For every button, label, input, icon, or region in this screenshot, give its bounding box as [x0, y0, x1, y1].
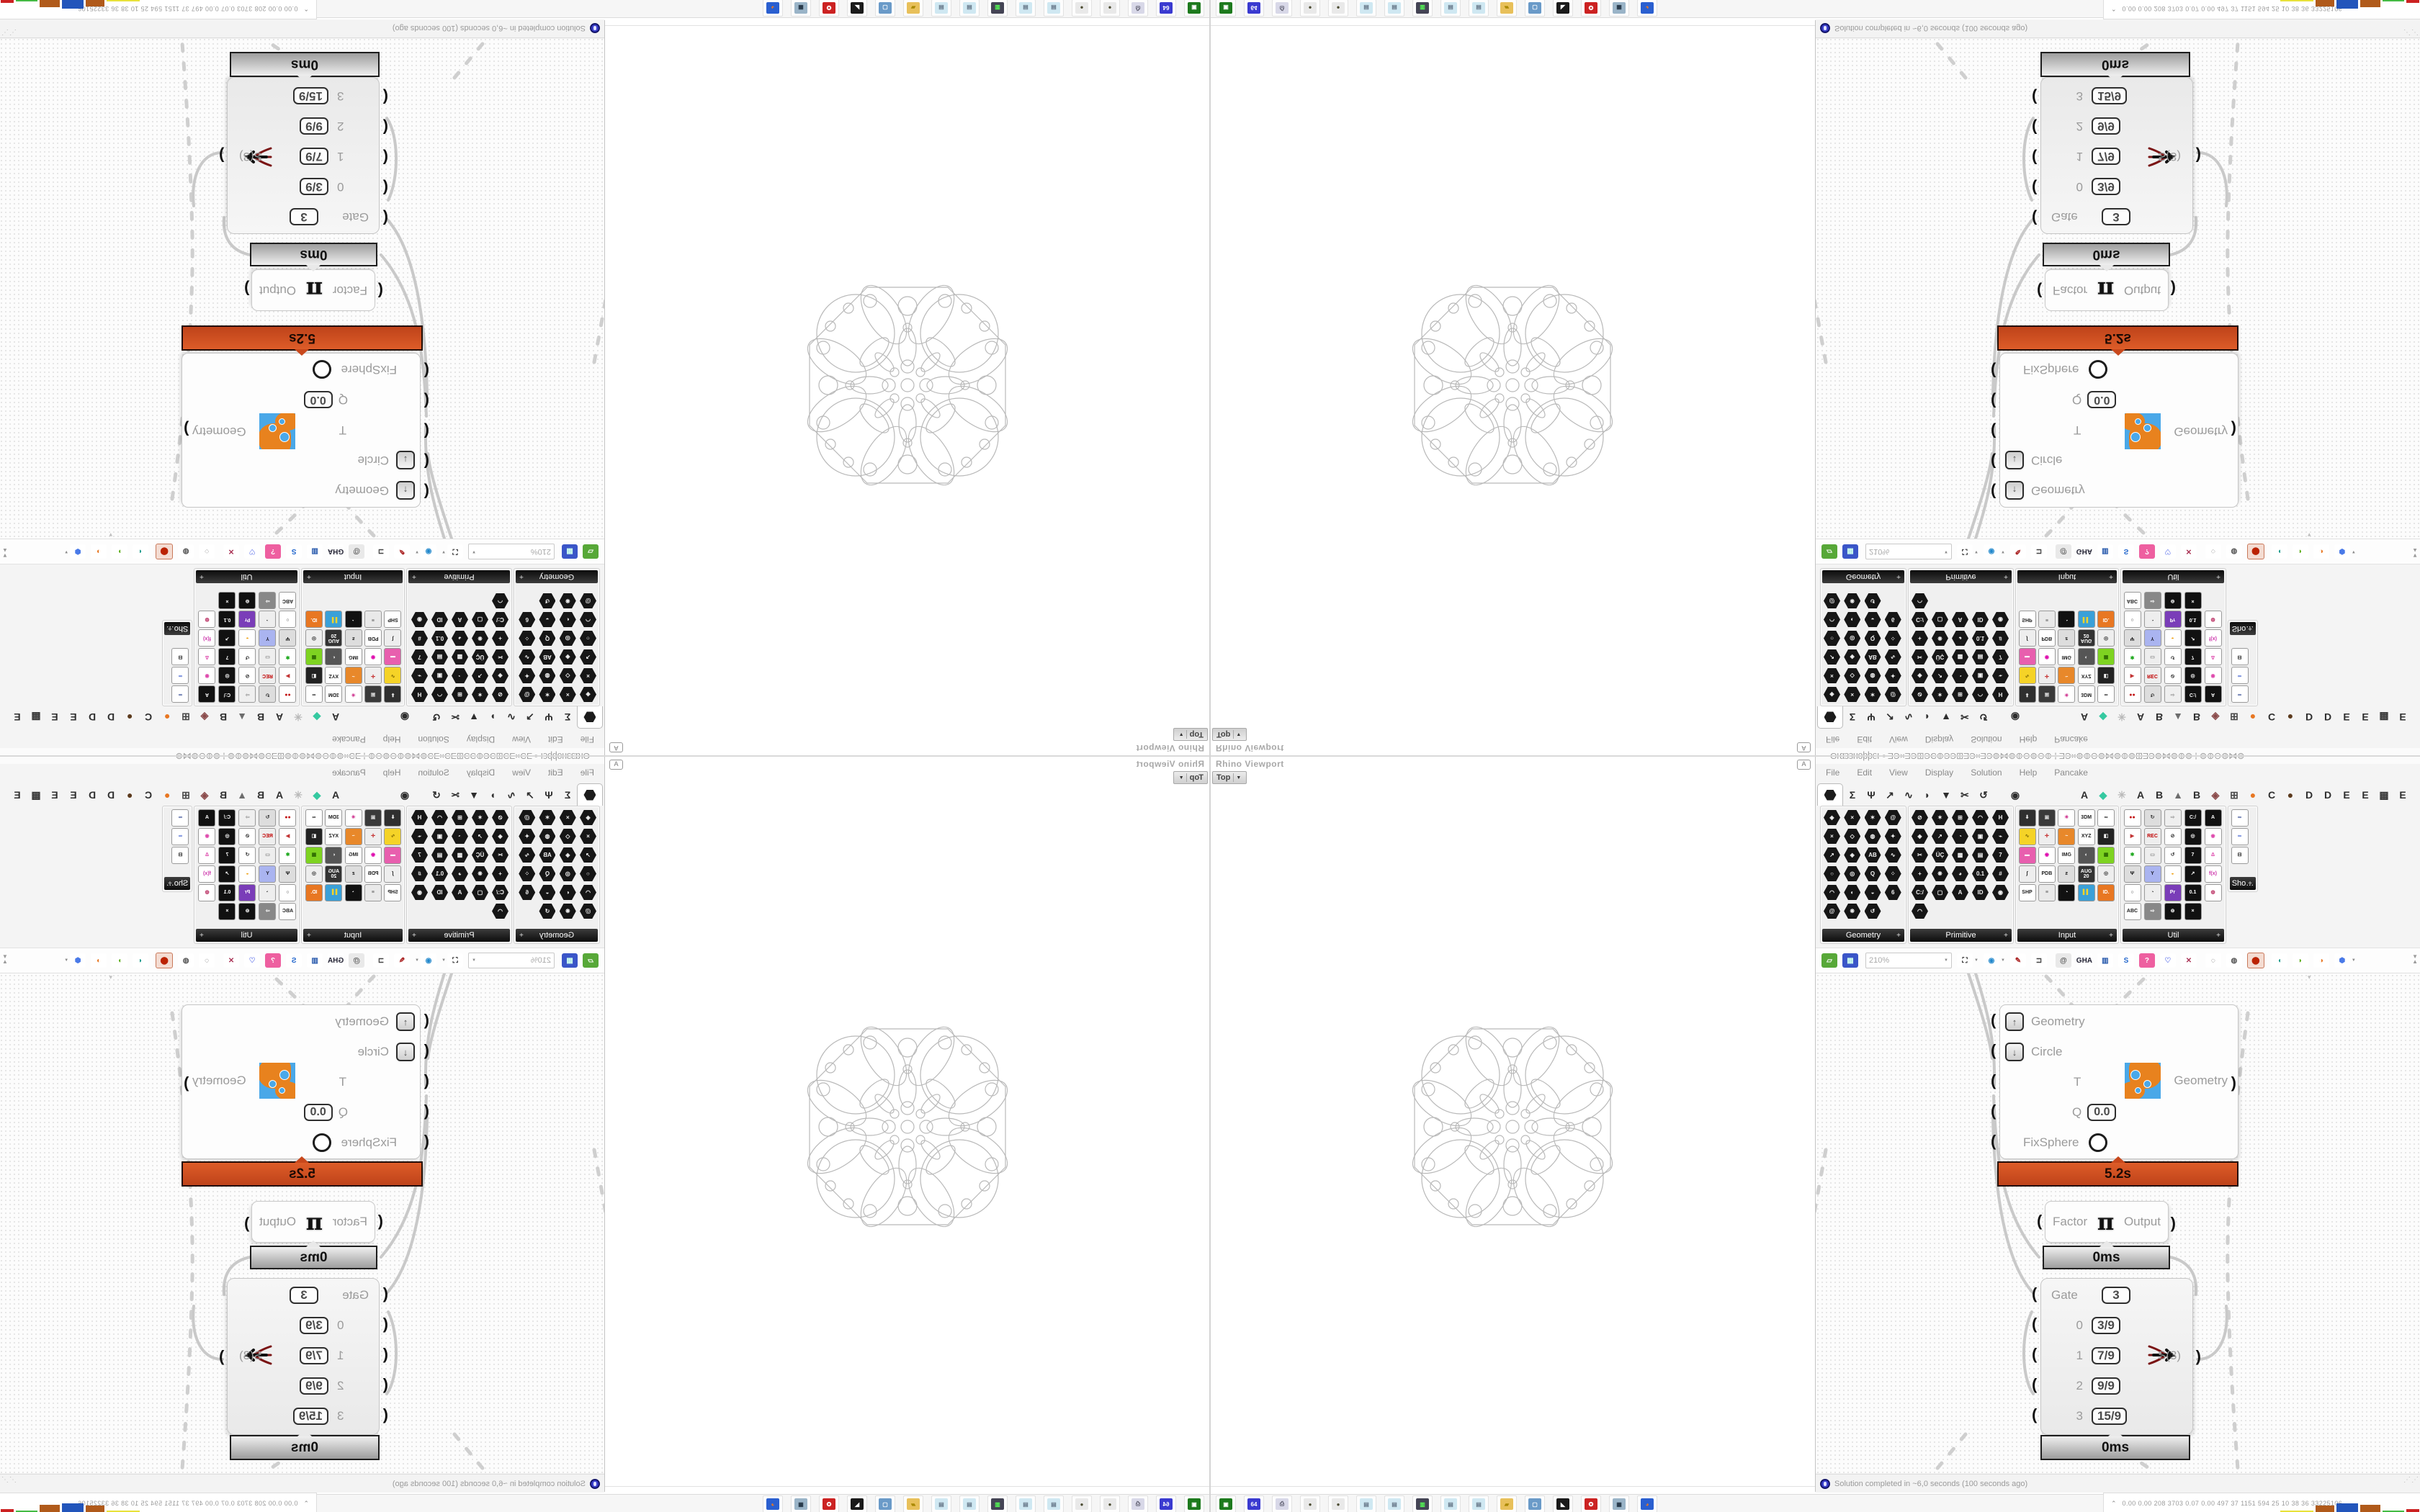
q-value-box[interactable]: 0.0	[304, 1104, 333, 1121]
palette-icon[interactable]: ✛	[364, 667, 382, 685]
palette-icon[interactable]: ✳	[344, 809, 362, 827]
palette-icon[interactable]: ◒	[1864, 611, 1882, 629]
taskbar-calculator-icon[interactable]: ▦	[791, 1495, 811, 1512]
toolbar-collapse-icon[interactable]: ▼▲	[2, 548, 8, 558]
mesh-tab[interactable]: ▼	[465, 784, 483, 806]
palette-group-label[interactable]: Sho…+	[2230, 877, 2256, 890]
palette-icon[interactable]: ▬	[384, 648, 402, 666]
input-grip[interactable]: (	[383, 181, 388, 195]
chevron-down-icon[interactable]: ▼	[415, 549, 419, 554]
palette-icon[interactable]: ⊟	[171, 648, 189, 666]
taskbar-terminal-monitor-icon[interactable]: ▥	[1412, 0, 1433, 17]
palette-icon[interactable]: ↺	[238, 846, 256, 864]
palette-icon[interactable]: ◠	[579, 883, 597, 901]
palette-icon[interactable]: 6	[518, 611, 536, 629]
palette-icon[interactable]: ○	[279, 611, 297, 629]
tab-B1[interactable]: B	[2150, 784, 2169, 806]
tab-D2[interactable]: D	[83, 784, 102, 806]
input-grip[interactable]: (	[383, 150, 388, 165]
palette-icon[interactable]: ◐	[2077, 846, 2095, 864]
palette-icon[interactable]: ◔	[2143, 611, 2161, 629]
sketch-brush-button[interactable]: ✎	[2010, 544, 2026, 559]
palette-expand-icon[interactable]: +	[2216, 932, 2220, 940]
palette-icon[interactable]: ◕	[1951, 629, 1969, 647]
menu-item-solution[interactable]: Solution	[1971, 734, 2002, 744]
palette-icon[interactable]: 7	[411, 846, 429, 864]
palette-icon[interactable]: A	[198, 685, 216, 703]
palette-icon[interactable]: ◈	[1843, 846, 1861, 864]
input-grip[interactable]: (	[383, 90, 388, 104]
palette-icon[interactable]: ×	[218, 592, 236, 610]
palette-icon[interactable]: ✦	[518, 827, 536, 845]
input-grip[interactable]: (	[1991, 394, 1996, 408]
up-arrow-button[interactable]: ↑	[396, 1012, 415, 1031]
palette-expand-icon[interactable]: +	[2248, 880, 2252, 888]
palette-icon[interactable]: 7	[2184, 648, 2202, 666]
palette-icon[interactable]: ◠	[1823, 883, 1841, 901]
fixsphere-toggle[interactable]	[2089, 360, 2107, 379]
fixsphere-toggle[interactable]	[313, 360, 331, 379]
output-grip[interactable]: )	[2231, 1074, 2236, 1092]
taskbar-cat-icon[interactable]: ◣	[1553, 1495, 1573, 1512]
gate-value-box[interactable]: 3/9	[300, 178, 328, 195]
palette-icon[interactable]: ▦	[2097, 648, 2115, 666]
chevron-down-icon[interactable]: ▼	[1944, 549, 1948, 554]
output-grip[interactable]: )	[2171, 279, 2176, 298]
palette-icon[interactable]: ◍	[539, 667, 557, 685]
palette-icon[interactable]: ABC	[2123, 902, 2141, 920]
palette-icon[interactable]: ⊘	[491, 809, 509, 827]
palette-icon[interactable]: SHP	[384, 611, 402, 629]
palette-icon[interactable]: ◐	[1843, 883, 1861, 901]
green-pipe-button[interactable]: ◗	[112, 544, 127, 559]
palette-icon[interactable]: Pr	[2164, 883, 2182, 901]
palette-icon[interactable]: +	[1911, 629, 1929, 647]
palette-icon[interactable]: ◈	[1843, 648, 1861, 666]
input-grip[interactable]: (	[2032, 1347, 2037, 1362]
palette-icon[interactable]: ◉	[411, 883, 429, 901]
display-tab[interactable]: ◉	[395, 784, 414, 806]
palette-icon[interactable]: ◔	[451, 667, 469, 685]
menu-item-edit[interactable]: Edit	[548, 734, 563, 744]
green-pipe-button[interactable]: ◗	[112, 953, 127, 968]
palette-icon[interactable]: ◍	[198, 883, 216, 901]
palette-icon[interactable]: ❋	[1931, 629, 1949, 647]
palette-icon[interactable]: ○	[2123, 883, 2141, 901]
tab-A2[interactable]: A	[2131, 784, 2150, 806]
palette-icon[interactable]: ID	[1971, 611, 1989, 629]
palette-icon[interactable]: ⁘	[518, 865, 536, 883]
palette-icon[interactable]: ×	[1823, 667, 1841, 685]
input-grip[interactable]: (	[383, 1317, 388, 1331]
taskbar-notepad-icon[interactable]: ▤	[1044, 1495, 1064, 1512]
taskbar-folder-icon[interactable]: ▰	[903, 0, 923, 17]
palette-icon[interactable]: 0.1	[431, 865, 449, 883]
orange-dot-tab[interactable]: ●	[158, 706, 176, 728]
input-grip[interactable]: (	[383, 1347, 388, 1362]
palette-icon[interactable]: ◠	[1823, 611, 1841, 629]
floating-a-button[interactable]: A	[609, 742, 623, 752]
palette-icon[interactable]: ✶	[1931, 685, 1949, 703]
palette-icon[interactable]: ◒	[2164, 865, 2182, 883]
taskbar-printer-icon[interactable]: ⎙	[1128, 1495, 1148, 1512]
palette-icon[interactable]: ◒	[539, 611, 557, 629]
menu-item-pancake[interactable]: Pancake	[332, 734, 366, 744]
tab-D1[interactable]: D	[2300, 784, 2318, 806]
palette-icon[interactable]: ✶	[1864, 809, 1882, 827]
palette-expand-icon[interactable]: +	[307, 932, 311, 940]
palette-icon[interactable]: IMG	[2058, 846, 2076, 864]
taskbar-browser-globe-icon[interactable]: ◕	[763, 0, 783, 17]
palette-icon[interactable]: ∿	[2018, 667, 2036, 685]
palette-icon[interactable]: ✂	[1911, 846, 1929, 864]
taskbar-browser-globe-icon[interactable]: ◕	[1637, 0, 1657, 17]
flower-tab[interactable]: ✳	[289, 706, 308, 728]
palette-group-label[interactable]: Input+	[2017, 570, 2117, 583]
palette-icon[interactable]: f(x)	[2204, 629, 2222, 647]
menu-item-view[interactable]: View	[1889, 734, 1908, 744]
palette-icon[interactable]: ●●	[2123, 809, 2141, 827]
output-grip[interactable]: )	[219, 146, 224, 165]
palette-icon[interactable]: ◔	[259, 883, 277, 901]
palette-icon[interactable]: ◔	[2058, 883, 2076, 901]
palette-icon[interactable]: ≡	[364, 611, 382, 629]
tab-A1[interactable]: A	[2075, 706, 2094, 728]
transform-tab[interactable]: ↺	[1974, 784, 1993, 806]
chevron-down-icon[interactable]: ▼	[1974, 958, 1978, 963]
tab-A2[interactable]: A	[270, 784, 289, 806]
maths-tab[interactable]: Σ	[1843, 784, 1862, 806]
palette-icon[interactable]: ◠	[431, 685, 449, 703]
palette-icon[interactable]: ↻	[259, 685, 277, 703]
palette-icon[interactable]: ◐	[325, 846, 343, 864]
search-s-button[interactable]: S	[286, 953, 302, 968]
preview-wire-button[interactable]: ◍	[178, 953, 194, 968]
palette-icon[interactable]: ✂	[491, 846, 509, 864]
gate-value-box[interactable]: 15/9	[2092, 1408, 2127, 1425]
palette-icon[interactable]: ◠	[1911, 592, 1929, 610]
palette-icon[interactable]: ◈	[1911, 667, 1929, 685]
palette-icon[interactable]: ⇨	[2143, 902, 2161, 920]
palette-icon[interactable]: Q	[539, 629, 557, 647]
blue-hex-button[interactable]: ⬢▼	[2334, 544, 2356, 559]
palette-icon[interactable]: Pr	[2164, 611, 2182, 629]
palette-icon[interactable]: Δ	[198, 846, 216, 864]
transform-tab[interactable]: ↺	[1974, 706, 1993, 728]
palette-icon[interactable]: ◔	[2143, 883, 2161, 901]
taskbar-notepad-icon[interactable]: ▤	[1384, 0, 1404, 17]
maths-tab[interactable]: Σ	[558, 784, 577, 806]
palette-icon[interactable]: ↗	[1931, 667, 1949, 685]
output-grip[interactable]: )	[2231, 420, 2236, 438]
palette-icon[interactable]: ◎	[2097, 865, 2115, 883]
palette-icon[interactable]: ▶	[279, 827, 297, 845]
palette-icon[interactable]: ✛	[364, 827, 382, 845]
menu-item-display[interactable]: Display	[1925, 734, 1953, 744]
palette-icon[interactable]: ∞	[171, 809, 189, 827]
preview-shaded-button[interactable]: ⬤	[156, 953, 173, 968]
viewport-top-button[interactable]: Top ▼	[1173, 771, 1208, 784]
palette-icon[interactable]: ▶	[2123, 667, 2141, 685]
palette-icon[interactable]: ◈	[491, 827, 509, 845]
save-file-button[interactable]: ▦	[1842, 544, 1858, 559]
gate-value-box[interactable]: 9/9	[2092, 1377, 2120, 1395]
menu-item-view[interactable]: View	[512, 734, 531, 744]
zoom-extents-button[interactable]: ⛶▼	[442, 953, 463, 968]
palette-icon[interactable]: ÜÇ	[471, 648, 489, 666]
at-button[interactable]: @	[349, 544, 364, 559]
palette-icon[interactable]: XYZ	[325, 827, 343, 845]
palette-icon[interactable]: ⊚	[238, 902, 256, 920]
blue-hex-button[interactable]: ⬢▼	[64, 953, 86, 968]
chevron-up-icon[interactable]: ⌃	[2111, 1502, 2117, 1506]
surface-tab[interactable]: ◗	[1918, 706, 1937, 728]
chevron-down-icon[interactable]: ▼	[1974, 549, 1978, 554]
taskbar-floppy64-icon[interactable]: 64	[1156, 0, 1176, 17]
teal-pipe-button[interactable]: ◖	[2272, 544, 2287, 559]
palette-icon[interactable]: ◈	[1823, 809, 1841, 827]
menu-item-pancake[interactable]: Pancake	[2054, 768, 2088, 778]
fixsphere-component[interactable]: Geometry ) (↑Geometry(↓Circle(T(Q0.0(Fix…	[181, 1004, 421, 1159]
sketch-brush-button[interactable]: ✎	[2010, 953, 2026, 968]
menu-item-solution[interactable]: Solution	[1971, 768, 2002, 778]
palette-icon[interactable]: ◎	[218, 827, 236, 845]
palette-icon[interactable]: ⇨	[238, 809, 256, 827]
palette-icon[interactable]: ◈	[1911, 827, 1929, 845]
taskbar-display-settings-icon[interactable]: ▢	[1525, 0, 1545, 17]
palette-icon[interactable]: ▭	[2143, 648, 2161, 666]
tab-E2[interactable]: E	[45, 784, 64, 806]
vector-tab[interactable]: ↗	[521, 706, 539, 728]
palette-expand-icon[interactable]: +	[2004, 932, 2008, 940]
palette-icon[interactable]: AB	[1864, 648, 1882, 666]
mountain-tab[interactable]: ▲	[2169, 784, 2187, 806]
zoom-extents-button[interactable]: ⛶▼	[1957, 953, 1978, 968]
tab-C[interactable]: C	[2262, 784, 2281, 806]
flower-tab[interactable]: ✳	[2112, 706, 2131, 728]
palette-icon[interactable]: ◎	[305, 865, 323, 883]
taskbar-notepad-icon[interactable]: ▤	[1469, 1495, 1489, 1512]
palette-icon[interactable]: ◎	[559, 629, 577, 647]
palette-icon[interactable]: 0.1	[2184, 883, 2202, 901]
palette-icon[interactable]: #	[1991, 865, 2009, 883]
taskbar-notepad-icon[interactable]: ▤	[959, 1495, 980, 1512]
surface-tab[interactable]: ◗	[1918, 784, 1937, 806]
palette-icon[interactable]: ○	[2123, 611, 2141, 629]
menu-item-edit[interactable]: Edit	[1857, 768, 1872, 778]
palette-icon[interactable]: ⊟	[2231, 846, 2249, 864]
resize-grip[interactable]: ⋰⋰	[1, 28, 17, 36]
palette-icon[interactable]: ▣	[1971, 827, 1989, 845]
zoom-level-combobox[interactable]: 210%▼	[468, 544, 555, 559]
taskbar-printer-icon[interactable]: ⎙	[1272, 0, 1292, 17]
gate-value-box[interactable]: 9/9	[300, 1377, 328, 1395]
input-grip[interactable]: (	[424, 394, 429, 408]
menu-item-file[interactable]: File	[581, 768, 594, 778]
palette-icon[interactable]: Ψ	[2123, 629, 2141, 647]
input-grip[interactable]: (	[424, 454, 429, 469]
palette-icon[interactable]: ⌁	[1991, 827, 2009, 845]
palette-icon[interactable]: ▤	[1971, 846, 1989, 864]
palette-icon[interactable]: Δ	[2204, 648, 2222, 666]
palette-icon[interactable]: ▣	[364, 685, 382, 703]
resize-grip[interactable]: ⋰⋰	[2403, 1476, 2419, 1484]
input-grip[interactable]: (	[1991, 424, 1996, 438]
palette-icon[interactable]: 0.1	[218, 883, 236, 901]
input-grip[interactable]: (	[1991, 454, 1996, 469]
palette-icon[interactable]: Pr	[238, 883, 256, 901]
input-grip[interactable]: (	[2032, 1408, 2037, 1422]
menu-item-edit[interactable]: Edit	[548, 768, 563, 778]
palette-icon[interactable]: ●●	[2123, 685, 2141, 703]
palette-icon[interactable]: ◔	[1951, 827, 1969, 845]
taskbar-terminal-monitor-icon[interactable]: ▥	[987, 1495, 1008, 1512]
system-stats-widget[interactable]: ⌃ 0.00 0.00 208 3703 0.07 0.00 497 37 11…	[0, 0, 317, 19]
mesh-tab[interactable]: ▼	[465, 706, 483, 728]
taskbar-red-badge-icon[interactable]: ✪	[1581, 1495, 1601, 1512]
exit-door-button[interactable]: ⊐	[373, 544, 389, 559]
preview-eye-button[interactable]: ◉▼	[1984, 953, 2005, 968]
palette-icon[interactable]: ∞	[171, 827, 189, 845]
tab-E1[interactable]: E	[64, 706, 83, 728]
palette-icon[interactable]: ▩	[451, 648, 469, 666]
palette-icon[interactable]: ⇨	[2143, 592, 2161, 610]
chevron-down-icon[interactable]: ▼	[64, 549, 68, 554]
blue-hex-button[interactable]: ⬢▼	[64, 544, 86, 559]
input-grip[interactable]: (	[2032, 120, 2037, 135]
palette-group-label[interactable]: Primitive+	[1910, 929, 2012, 942]
gate-value-box[interactable]: 15/9	[2092, 87, 2127, 104]
palette-icon[interactable]: ▶	[2123, 827, 2141, 845]
palette-icon[interactable]: ⇨	[259, 902, 277, 920]
orange-dot-tab[interactable]: ●	[158, 784, 176, 806]
taskbar-red-badge-icon[interactable]: ✪	[819, 0, 839, 17]
output-grip[interactable]: )	[244, 1214, 249, 1233]
taskbar-green-monitor-icon[interactable]: ▣	[1216, 0, 1236, 17]
palette-icon[interactable]: 7	[1991, 846, 2009, 864]
intersect-tab[interactable]: ✂	[1955, 706, 1974, 728]
palette-group-label[interactable]: Sho…+	[164, 877, 190, 890]
resize-grip[interactable]: ⋰⋰	[2403, 28, 2419, 36]
preview-none-button[interactable]: ◌	[199, 953, 215, 968]
preview-eye-button[interactable]: ◉▼	[415, 953, 436, 968]
palette-icon[interactable]: ⇨	[2164, 809, 2182, 827]
palette-icon[interactable]: ×	[2184, 902, 2202, 920]
gate-value-box[interactable]: 15/9	[293, 1408, 328, 1425]
intersect-tab[interactable]: ✂	[446, 706, 465, 728]
grasshopper-canvas[interactable]: ▾	[1816, 973, 2420, 1473]
input-grip[interactable]: (	[424, 1134, 429, 1148]
palette-expand-icon[interactable]: +	[200, 573, 204, 581]
palette-icon[interactable]: ◠	[1911, 902, 1929, 920]
palette-icon[interactable]: ◇	[1843, 827, 1861, 845]
menu-item-solution[interactable]: Solution	[418, 734, 449, 744]
tab-D1[interactable]: D	[2300, 706, 2318, 728]
input-grip[interactable]: (	[383, 1408, 388, 1422]
q-value-box[interactable]: 0.0	[304, 391, 333, 408]
palette-group-label[interactable]: Sho…+	[164, 622, 190, 635]
palette-icon[interactable]: ↗	[218, 865, 236, 883]
palette-icon[interactable]: ◈	[579, 685, 597, 703]
zoom-level-combobox[interactable]: 210%▼	[1865, 953, 1952, 968]
palette-icon[interactable]: ↺	[539, 592, 557, 610]
palette-icon[interactable]: Y	[259, 629, 277, 647]
zoom-level-combobox[interactable]: 210%▼	[468, 953, 555, 968]
palette-icon[interactable]: #	[1991, 629, 2009, 647]
palette-icon[interactable]: 7	[2184, 846, 2202, 864]
taskbar-green-monitor-icon[interactable]: ▣	[1184, 0, 1204, 17]
palette-icon[interactable]: ▣	[2038, 809, 2056, 827]
tab-E1[interactable]: E	[2337, 784, 2356, 806]
palette-icon[interactable]: SHP	[2018, 611, 2036, 629]
lightbulb-button[interactable]: ♡	[2160, 544, 2176, 559]
tab-D2[interactable]: D	[83, 706, 102, 728]
palette-icon[interactable]: ▤	[431, 846, 449, 864]
palette-icon[interactable]: C:/	[2184, 685, 2202, 703]
preview-eye-button[interactable]: ◉▼	[415, 544, 436, 559]
chevron-down-icon[interactable]: ▼	[472, 958, 476, 963]
palette-icon[interactable]: ◒	[1864, 883, 1882, 901]
tab-E2[interactable]: E	[2356, 706, 2375, 728]
palette-icon[interactable]: ▤	[1971, 648, 1989, 666]
input-grip[interactable]: (	[383, 1377, 388, 1392]
palette-icon[interactable]: ↻	[2143, 685, 2161, 703]
taskbar-notepad-icon[interactable]: ▤	[959, 0, 980, 17]
taskbar-notepad-icon[interactable]: ▤	[1356, 1495, 1376, 1512]
palette-icon[interactable]: ▢	[1931, 611, 1949, 629]
open-file-button[interactable]: ▱	[583, 953, 599, 968]
pi-component[interactable]: ( Factor π Output )	[251, 1201, 375, 1243]
dither-tab[interactable]: ▩	[2375, 706, 2393, 728]
chevron-down-icon[interactable]: ▼	[415, 958, 419, 963]
preview-shaded-button[interactable]: ⬤	[156, 544, 173, 559]
palette-icon[interactable]: 3DM	[2077, 809, 2095, 827]
menu-item-display[interactable]: Display	[1925, 768, 1953, 778]
palette-icon[interactable]: AB	[1864, 846, 1882, 864]
sets-tab[interactable]: Ψ	[1862, 706, 1881, 728]
palette-icon[interactable]: ✶	[471, 685, 489, 703]
params-tab[interactable]	[577, 783, 603, 806]
taskbar-folder-icon[interactable]: ▰	[1497, 0, 1517, 17]
curve-tab[interactable]: ∿	[502, 706, 521, 728]
palette-icon[interactable]: 0.1	[218, 611, 236, 629]
taskbar-browser-globe-icon[interactable]: ◕	[763, 1495, 783, 1512]
palette-icon[interactable]: ▭	[259, 846, 277, 864]
help-box-button[interactable]: ?	[2139, 953, 2155, 968]
palette-icon[interactable]: ⇨	[238, 685, 256, 703]
palette-icon[interactable]: ◉	[364, 648, 382, 666]
tab-A2[interactable]: A	[270, 706, 289, 728]
palette-icon[interactable]: Y	[2143, 629, 2161, 647]
gha-button[interactable]: GHA	[328, 544, 344, 559]
output-grip[interactable]: )	[184, 420, 189, 438]
palette-icon[interactable]: ◉	[198, 667, 216, 685]
grasshopper-titlebar[interactable]: Grasshopper - ƎƆ×ƎƆ⊞ƆϹ⊕ƆƆ⊞ƎƆ×ƎƆ⊛⋈⊛⊕⊖⊛⊙⊕⊹…	[0, 756, 604, 764]
palette-icon[interactable]: ↺	[1864, 592, 1882, 610]
taskbar-moss-ball-icon[interactable]: ●	[1100, 0, 1120, 17]
palette-icon[interactable]: ⌁	[411, 827, 429, 845]
taskbar-notepad-icon[interactable]: ▤	[931, 1495, 951, 1512]
palette-icon[interactable]: ◧	[305, 827, 323, 845]
palette-icon[interactable]: ∫	[2018, 629, 2036, 647]
taskbar-moss-ball-icon[interactable]: ●	[1328, 1495, 1348, 1512]
window-image-button[interactable]: ▥	[2097, 953, 2113, 968]
palette-expand-icon[interactable]: +	[200, 932, 204, 940]
palette-icon[interactable]: ◒	[2164, 629, 2182, 647]
window-image-button[interactable]: ▥	[307, 544, 323, 559]
palette-icon[interactable]: f(x)	[198, 629, 216, 647]
open-file-button[interactable]: ▱	[583, 544, 599, 559]
